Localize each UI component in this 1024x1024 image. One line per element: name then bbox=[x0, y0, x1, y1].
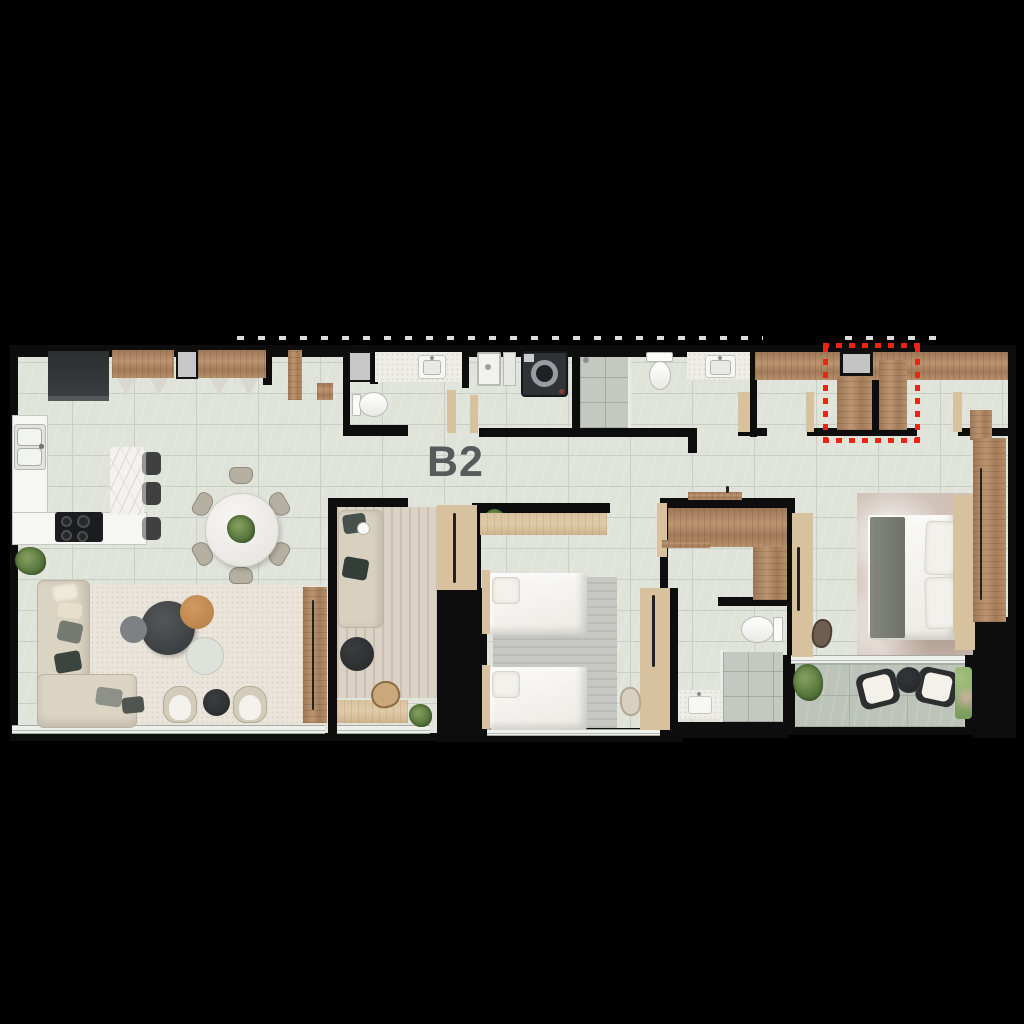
bed-pillow bbox=[924, 576, 956, 629]
centerpiece-plant bbox=[227, 515, 255, 543]
wall bbox=[683, 728, 788, 738]
closet-cabinet bbox=[879, 360, 907, 430]
throw-pillow bbox=[57, 602, 82, 619]
potted-plant bbox=[793, 664, 823, 701]
console-handle bbox=[312, 600, 314, 710]
highlight-edge-top bbox=[823, 343, 920, 348]
coffee-table-stone bbox=[186, 637, 224, 675]
headboard bbox=[482, 570, 490, 634]
den-desk bbox=[337, 700, 408, 723]
wall bbox=[973, 617, 1016, 738]
bed-runner bbox=[870, 517, 905, 638]
armchair bbox=[163, 686, 197, 723]
shower-head-icon bbox=[583, 357, 589, 363]
dining-chair bbox=[229, 567, 253, 584]
wall bbox=[343, 425, 408, 436]
closet-rail bbox=[662, 540, 710, 548]
sink-bowl bbox=[17, 448, 42, 466]
balcony-slider bbox=[791, 655, 965, 664]
wall bbox=[10, 733, 440, 741]
burner-icon bbox=[77, 515, 90, 528]
shower-floor bbox=[580, 352, 630, 428]
vanity-sink bbox=[688, 696, 712, 714]
wall bbox=[328, 498, 408, 507]
master-shower-floor bbox=[723, 652, 783, 722]
bedroom2-window bbox=[487, 729, 660, 736]
burner-icon bbox=[61, 516, 72, 527]
floor-plan: B2 bbox=[0, 0, 1024, 1024]
hall-shelf bbox=[688, 492, 742, 500]
kitchen-island bbox=[110, 447, 144, 515]
top-edge-marks bbox=[845, 336, 945, 340]
tv-console bbox=[303, 587, 327, 723]
bedroom2-wardrobe bbox=[640, 588, 670, 730]
service-shaft bbox=[176, 350, 198, 379]
closet-cabinet bbox=[837, 377, 872, 430]
pantry-cabinet bbox=[288, 350, 302, 400]
sink-basin bbox=[423, 360, 441, 375]
wall bbox=[1008, 345, 1016, 641]
wardrobe-handle bbox=[453, 513, 456, 583]
wall bbox=[462, 345, 469, 388]
throw-pillow bbox=[51, 582, 79, 602]
den-coffee-table bbox=[340, 637, 374, 671]
toilet-bowl bbox=[359, 392, 388, 417]
master-desk bbox=[792, 513, 813, 657]
door-jamb bbox=[657, 503, 667, 557]
coffee-table-small bbox=[120, 616, 147, 643]
wall bbox=[688, 437, 697, 453]
bar-stool bbox=[142, 452, 161, 475]
headboard bbox=[482, 665, 490, 729]
wall bbox=[783, 727, 973, 735]
coffee-table-wood bbox=[180, 595, 214, 629]
bar-stool bbox=[142, 517, 161, 540]
faucet-icon bbox=[430, 356, 434, 360]
floor-plan-canvas: B2 bbox=[0, 0, 1024, 1024]
potted-plant bbox=[409, 704, 432, 727]
washer-detergent-box bbox=[524, 354, 534, 362]
sink-bowl bbox=[17, 428, 42, 446]
den-wardrobe bbox=[437, 505, 477, 590]
highlight-edge-left bbox=[823, 343, 828, 443]
highlight-edge-bottom bbox=[823, 438, 920, 443]
bed-pillow bbox=[492, 577, 520, 604]
door-leaf bbox=[317, 383, 333, 400]
burner-icon bbox=[77, 531, 88, 542]
shower-glass bbox=[628, 352, 631, 428]
dining-chair bbox=[229, 467, 253, 484]
floor-lamp-icon bbox=[357, 522, 370, 535]
bed-pillow bbox=[924, 520, 956, 575]
bar-stool bbox=[142, 482, 161, 505]
toilet-tank bbox=[773, 617, 783, 642]
wall bbox=[572, 345, 580, 437]
door-jamb bbox=[470, 395, 478, 433]
wall bbox=[670, 588, 678, 730]
throw-pillow bbox=[121, 696, 145, 714]
master-wardrobe bbox=[973, 438, 1006, 622]
armchair bbox=[233, 686, 267, 723]
bedroom2-desk bbox=[480, 513, 607, 535]
toilet-bowl bbox=[649, 361, 671, 390]
washer-door-icon bbox=[531, 360, 558, 387]
wall bbox=[479, 428, 697, 437]
toilet-bowl bbox=[741, 616, 774, 643]
burner-icon bbox=[61, 530, 72, 541]
desk-handle bbox=[797, 547, 800, 611]
potted-plant bbox=[15, 547, 46, 575]
wall bbox=[328, 498, 337, 735]
faucet-icon bbox=[697, 692, 701, 696]
den-window bbox=[337, 725, 430, 734]
wardrobe-handle bbox=[980, 468, 982, 600]
side-table bbox=[203, 689, 230, 716]
throw-pillow bbox=[95, 686, 123, 707]
highlight-edge-right bbox=[915, 343, 920, 443]
door-jamb bbox=[447, 390, 456, 433]
shelf-bracket bbox=[726, 486, 729, 493]
wardrobe-handle bbox=[652, 595, 655, 667]
unit-label: B2 bbox=[427, 441, 484, 484]
faucet-icon bbox=[39, 444, 44, 449]
throw-pillow bbox=[341, 556, 369, 581]
door-jamb bbox=[953, 392, 962, 432]
shower-panel bbox=[503, 352, 516, 386]
planter-box bbox=[955, 667, 972, 719]
door-jamb bbox=[738, 392, 750, 432]
wall bbox=[783, 655, 791, 735]
outdoor-table bbox=[896, 667, 922, 693]
headboard bbox=[953, 495, 973, 633]
drain-icon bbox=[485, 364, 491, 370]
service-shaft bbox=[840, 351, 873, 376]
service-shaft bbox=[348, 351, 372, 382]
refrigerator bbox=[48, 351, 109, 401]
bed-pillow bbox=[492, 671, 520, 698]
faucet-icon bbox=[718, 356, 722, 360]
kitchen-upper-cabinet bbox=[112, 350, 174, 378]
door-jamb bbox=[806, 392, 814, 432]
top-edge-marks bbox=[237, 336, 763, 340]
kitchen-upper-cabinet bbox=[198, 350, 266, 378]
washer-button bbox=[559, 389, 564, 394]
sink-basin bbox=[710, 360, 731, 375]
walk-in-closet-cabinet bbox=[753, 547, 787, 600]
wall bbox=[437, 588, 487, 735]
bed-bench bbox=[955, 622, 975, 650]
wardrobe bbox=[970, 410, 992, 440]
